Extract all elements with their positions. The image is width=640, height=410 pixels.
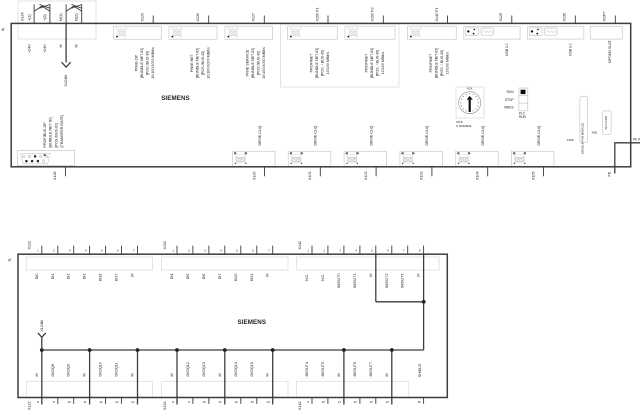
svg-text:M: M <box>131 373 135 376</box>
svg-text:X104: X104 <box>476 171 480 180</box>
svg-text:11: 11 <box>83 400 86 404</box>
svg-text:13: 13 <box>250 400 254 404</box>
svg-text:DI17: DI17 <box>115 274 119 282</box>
svg-text:USB 3.0: USB 3.0 <box>569 43 573 56</box>
svg-text:DI/DQ8: DI/DQ8 <box>51 364 55 376</box>
svg-text:X135: X135 <box>563 13 567 22</box>
svg-text:DI/DQ11: DI/DQ11 <box>115 362 119 376</box>
svg-text:DI5: DI5 <box>186 274 190 280</box>
svg-text:X102: X102 <box>364 171 368 180</box>
svg-text:DI20: DI20 <box>234 274 238 282</box>
svg-text:M: M <box>385 373 389 376</box>
svg-text:13: 13 <box>115 400 119 404</box>
svg-text:[BUNDLE NET-ID]: [BUNDLE NET-ID] <box>49 117 53 147</box>
svg-text:[POS. / BUS-ID]: [POS. / BUS-ID] <box>440 50 444 76</box>
svg-text:M: M <box>170 373 174 376</box>
svg-text:MRES: MRES <box>504 105 513 109</box>
svg-text:PROFIBUS-DP: PROFIBUS-DP <box>43 122 47 148</box>
svg-text:SHIELD: SHIELD <box>418 364 422 378</box>
svg-text:RUN: RUN <box>507 90 515 94</box>
svg-text:+24V: +24V <box>43 44 47 53</box>
svg-text:DI4: DI4 <box>170 274 174 280</box>
svg-text:[POS. / BUS-ID]: [POS. / BUS-ID] <box>320 50 324 76</box>
svg-text:X142: X142 <box>298 241 302 250</box>
svg-text:M: M <box>337 373 341 376</box>
svg-text:N.C.: N.C. <box>305 274 309 281</box>
svg-text:+24V: +24V <box>27 44 31 53</box>
svg-text:0 NORMAL: 0 NORMAL <box>456 124 472 128</box>
svg-text:DI6: DI6 <box>202 274 206 280</box>
svg-text:[BUNDLE NET-ID]: [BUNDLE NET-ID] <box>251 48 255 78</box>
svg-text:X150 P2: X150 P2 <box>371 7 375 21</box>
svg-text:M: M <box>83 373 87 376</box>
svg-text:IN/OUT5: IN/OUT5 <box>321 362 325 377</box>
svg-text:IN/OUT6: IN/OUT6 <box>353 362 357 377</box>
svg-text:XOPT: XOPT <box>603 11 607 22</box>
svg-text:16: 16 <box>417 400 421 404</box>
svg-text:X132: X132 <box>163 401 167 410</box>
svg-text:X127: X127 <box>252 13 256 22</box>
svg-text:M: M <box>59 44 63 47</box>
svg-text:M: M <box>218 373 222 376</box>
svg-text:NCK: NCK <box>467 86 473 90</box>
svg-text:X122: X122 <box>28 401 32 410</box>
svg-text:SIEMENS: SIEMENS <box>161 95 190 102</box>
svg-text:IN/OUT1: IN/OUT1 <box>353 274 357 289</box>
svg-text:10: 10 <box>203 400 207 404</box>
svg-text:PE: PE <box>607 171 611 176</box>
svg-text:M: M <box>266 373 270 376</box>
svg-text:12: 12 <box>234 400 238 404</box>
svg-text:PROFINET: PROFINET <box>429 53 433 72</box>
svg-text:DOUBLE FAN MODULE: DOUBLE FAN MODULE <box>581 123 585 155</box>
svg-text:PROFINET: PROFINET <box>365 53 369 72</box>
svg-text:10: 10 <box>322 400 326 404</box>
svg-text:X124: X124 <box>21 12 25 21</box>
svg-text:12: 12 <box>99 400 103 404</box>
svg-text:10/100/1000 MBit/s: 10/100/1000 MBit/s <box>151 47 155 79</box>
svg-text:DI2: DI2 <box>67 274 71 280</box>
svg-text:[POS./BUS-ID]: [POS./BUS-ID] <box>257 51 261 75</box>
svg-text:USB 3.0: USB 3.0 <box>505 43 509 56</box>
svg-text:+(2): +(2) <box>43 14 47 21</box>
svg-text:M: M <box>266 274 270 277</box>
svg-text:X124M: X124M <box>64 75 68 87</box>
svg-text:10/100 MBit/s: 10/100 MBit/s <box>381 52 385 75</box>
svg-text:DI/DQ10: DI/DQ10 <box>99 362 103 376</box>
svg-text:DRIVE-CLiQ: DRIVE-CLiQ <box>369 125 373 145</box>
svg-text:10/100 MBit/s: 10/100 MBit/s <box>326 52 330 75</box>
svg-text:SD CARD: SD CARD <box>604 115 608 129</box>
svg-text:DI21: DI21 <box>250 274 254 282</box>
svg-text:M: M <box>35 373 39 376</box>
svg-text:DRIVE-CLiQ: DRIVE-CLiQ <box>481 125 485 145</box>
svg-text:DRIVE-CLiQ: DRIVE-CLiQ <box>314 125 318 145</box>
svg-text:10: 10 <box>67 400 71 404</box>
svg-text:[BUNDLE NET-ID]: [BUNDLE NET-ID] <box>370 48 374 78</box>
svg-text:X150 P1: X150 P1 <box>315 7 319 21</box>
svg-text:13: 13 <box>369 400 373 404</box>
svg-text:PE W1: PE W1 <box>633 138 640 142</box>
svg-text:[POS./BUS-ID]: [POS./BUS-ID] <box>54 123 58 147</box>
svg-text:X101: X101 <box>308 171 312 180</box>
svg-text:[TRANSFER RATE]: [TRANSFER RATE] <box>60 115 64 148</box>
svg-text:DRIVE-CLiQ: DRIVE-CLiQ <box>537 125 541 145</box>
svg-text:M: M <box>131 274 135 277</box>
svg-text:DI/DQ14: DI/DQ14 <box>234 362 238 376</box>
svg-text:IN/OUT7: IN/OUT7 <box>369 362 373 377</box>
svg-text:14: 14 <box>266 400 270 404</box>
svg-text:IN/OUT3: IN/OUT3 <box>401 274 405 289</box>
svg-text:IN/OUT0: IN/OUT0 <box>337 274 341 289</box>
svg-text:IN/OUT2: IN/OUT2 <box>385 274 389 289</box>
svg-text:[BUNDLE NET-ID]: [BUNDLE NET-ID] <box>434 48 438 78</box>
svg-text:M: M <box>75 44 79 47</box>
svg-text:DI3: DI3 <box>83 274 87 280</box>
svg-text:14: 14 <box>385 400 389 404</box>
svg-text:PROFINET: PROFINET <box>309 53 313 72</box>
svg-text:M(1): M(1) <box>59 13 63 21</box>
svg-text:X142: X142 <box>298 401 302 410</box>
svg-text:[POS./BUS-ID]: [POS./BUS-ID] <box>146 51 150 75</box>
svg-text:X55: X55 <box>592 131 598 135</box>
svg-text:IN/OUT4: IN/OUT4 <box>305 362 309 377</box>
svg-text:+(1): +(1) <box>27 14 31 21</box>
svg-text:SIEMENS: SIEMENS <box>238 319 267 326</box>
svg-text:11: 11 <box>338 400 341 404</box>
svg-text:PN/IE-OP: PN/IE-OP <box>135 54 139 71</box>
svg-text:10/100/1000 MBit/s: 10/100/1000 MBit/s <box>207 47 211 79</box>
svg-text:DI16: DI16 <box>99 274 103 282</box>
svg-text:[POS./BUS-ID]: [POS./BUS-ID] <box>201 51 205 75</box>
svg-text:[BUNDLE NET-ID]: [BUNDLE NET-ID] <box>140 48 144 78</box>
svg-text:11: 11 <box>219 400 222 404</box>
svg-text:X120: X120 <box>141 13 145 22</box>
svg-text:DI7: DI7 <box>218 274 222 280</box>
svg-text:X132: X132 <box>163 241 167 250</box>
svg-text:14: 14 <box>131 400 135 404</box>
svg-text:X130: X130 <box>196 13 200 22</box>
svg-text:PN/IE SERVICE: PN/IE SERVICE <box>246 49 250 76</box>
svg-text:[POS. / BUS-ID]: [POS. / BUS-ID] <box>376 50 380 76</box>
svg-text:10/100/1000 MBit/s: 10/100/1000 MBit/s <box>262 47 266 79</box>
svg-text:X100: X100 <box>252 171 256 180</box>
svg-text:M(2): M(2) <box>75 13 79 21</box>
svg-text:X140 P1: X140 P1 <box>435 7 439 21</box>
svg-text:PN/IE NET: PN/IE NET <box>190 53 194 72</box>
svg-text:DI0: DI0 <box>35 274 39 280</box>
svg-text:X125: X125 <box>499 13 503 22</box>
svg-text:M: M <box>417 274 421 277</box>
svg-text:12: 12 <box>354 400 358 404</box>
svg-text:N.C.: N.C. <box>321 274 325 281</box>
svg-text:X126: X126 <box>53 171 57 180</box>
svg-text:STOP: STOP <box>505 98 514 102</box>
svg-text:DI/DQ15: DI/DQ15 <box>250 362 254 376</box>
svg-text:DRIVE-CLiQ: DRIVE-CLiQ <box>425 125 429 145</box>
svg-text:OPTION SLOT: OPTION SLOT <box>608 40 612 63</box>
svg-text:[BUNDLE NET-ID]: [BUNDLE NET-ID] <box>196 48 200 78</box>
svg-text:X105: X105 <box>531 171 535 180</box>
svg-text:DI/DQ9: DI/DQ9 <box>67 364 71 376</box>
svg-text:X122: X122 <box>28 241 32 250</box>
svg-text:X124M: X124M <box>40 320 44 332</box>
svg-text:X103: X103 <box>420 171 424 180</box>
svg-text:DRIVE-CLiQ: DRIVE-CLiQ <box>258 125 262 145</box>
svg-text:DI1: DI1 <box>51 274 55 280</box>
svg-text:10/100 MBit/s: 10/100 MBit/s <box>445 52 449 75</box>
svg-text:DI/DQ13: DI/DQ13 <box>202 362 206 376</box>
svg-text:X100: X100 <box>567 138 575 142</box>
svg-text:DI/DQ12: DI/DQ12 <box>186 362 190 376</box>
svg-text:RUN: RUN <box>519 115 527 119</box>
svg-text:[BUNDLE NET-ID]: [BUNDLE NET-ID] <box>315 48 319 78</box>
svg-text:M: M <box>369 274 373 277</box>
